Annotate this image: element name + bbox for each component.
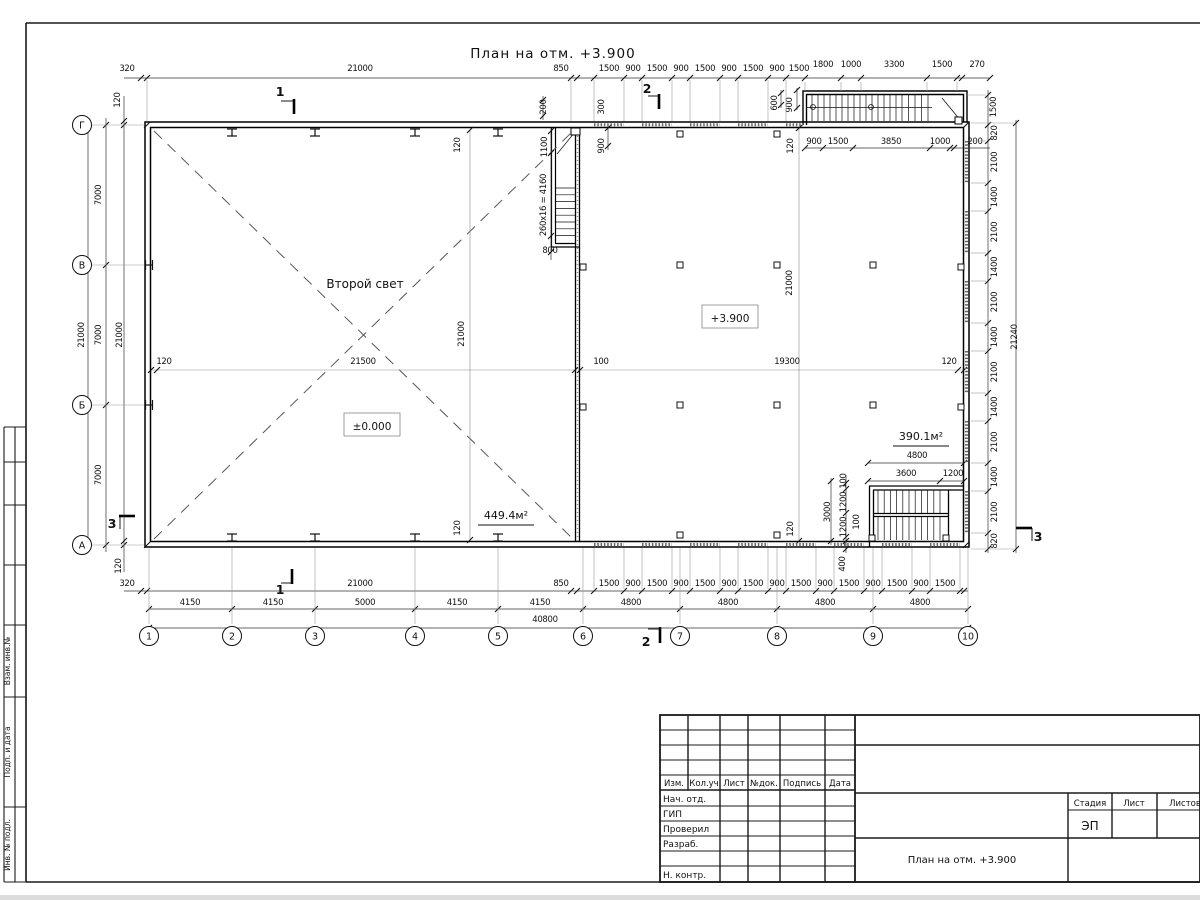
dim-label: 4150: [447, 598, 467, 608]
dim-label: 100: [852, 514, 862, 529]
dim-label: 1500: [647, 579, 667, 589]
dim-label: 1400: [990, 397, 1000, 417]
column-mark: [677, 532, 683, 538]
dim-label: 7000: [94, 325, 104, 345]
tb-col-podpis: Подпись: [783, 779, 821, 789]
level-zero-label: ±0.000: [353, 421, 392, 433]
dim-label: 1500: [695, 64, 715, 74]
axis-label: Г: [79, 121, 85, 132]
axis-label: В: [79, 261, 86, 272]
dim-label: 3850: [881, 137, 901, 147]
area-label-right: 390.1м²: [899, 430, 943, 443]
dim-label: 4150: [263, 598, 283, 608]
plan-title: План на отм. +3.900: [470, 46, 635, 62]
stamp-podp-data: Подп. и дата: [3, 726, 12, 777]
dim-label: 2100: [990, 152, 1000, 172]
dim-label: 320: [119, 579, 134, 589]
dim-label: 320: [119, 64, 134, 74]
stamp-inv-podl: Инв. № подл.: [3, 819, 12, 871]
dim-label: 4150: [180, 598, 200, 608]
tb-col-izm: Изм.: [664, 779, 684, 789]
tb-col-koluch: Кол.уч: [689, 779, 718, 789]
drawing-sheet: Взам. инв.№ Подп. и дата Инв. № подл. Пл…: [0, 0, 1200, 900]
tb-stage-value: ЭП: [1081, 819, 1098, 833]
dim-label: 300: [597, 99, 607, 114]
dim-label: 3000: [823, 502, 833, 522]
dim-label: 1200: [839, 492, 849, 512]
dim-label: 900: [673, 64, 688, 74]
dim-label: 1500: [789, 64, 809, 74]
dim-label: 21000: [347, 64, 373, 74]
dim-label: 120: [156, 357, 171, 367]
dim-label: 1500: [743, 64, 763, 74]
dim-label: 40800: [532, 615, 558, 625]
dim-label: 120: [786, 521, 796, 536]
column-mark: [774, 262, 780, 268]
stamp-vzam-inv: Взам. инв.№: [3, 637, 12, 686]
axis-label: 3: [312, 632, 318, 643]
dim-label: 21000: [77, 322, 87, 348]
section-number: 1: [276, 582, 284, 597]
column-mark: [870, 402, 876, 408]
dim-label: 1800: [813, 60, 833, 70]
dim-label: 900: [769, 64, 784, 74]
dim-label: 4150: [530, 598, 550, 608]
dim-label: 4800: [907, 451, 927, 461]
column-mark: [580, 404, 586, 410]
tb-row-proveril: Проверил: [663, 825, 709, 835]
dim-label: 270: [969, 60, 984, 70]
dim-label: 900: [806, 137, 821, 147]
dim-label: 21000: [115, 322, 125, 348]
vestibule-walls: [803, 91, 967, 125]
dim-label: 850: [553, 579, 568, 589]
dim-label: 1500: [743, 579, 763, 589]
tb-col-ndok: №док.: [750, 779, 778, 789]
column-mark: [677, 131, 683, 137]
column-mark: [677, 262, 683, 268]
dim-label: 850: [553, 64, 568, 74]
dim-label: 5000: [355, 598, 375, 608]
dim-label: 260x16 = 4160: [539, 174, 549, 236]
dim-label: 100: [593, 357, 608, 367]
dim-label: 3300: [884, 60, 904, 70]
axis-label: 8: [774, 632, 780, 643]
dim-label: 1200: [839, 517, 849, 537]
column-mark: [580, 264, 586, 270]
tb-listov-header: Листов: [1169, 799, 1200, 809]
column-mark: [774, 131, 780, 137]
axis-label: 7: [677, 632, 683, 643]
section-number: 3: [1034, 529, 1042, 544]
dim-label: 1500: [839, 579, 859, 589]
tb-row-razrab: Разраб.: [663, 840, 698, 850]
dim-label: 400: [838, 556, 848, 571]
dim-label: 1500: [989, 97, 999, 117]
dim-label: 900: [721, 579, 736, 589]
dim-label: 120: [786, 138, 796, 153]
tb-row-n-kontr: Н. контр.: [663, 871, 706, 881]
dim-label: 1500: [932, 60, 952, 70]
dim-label: 900: [817, 579, 832, 589]
section-number: 1: [276, 84, 284, 99]
dim-label: 21000: [347, 579, 373, 589]
dim-label: 2100: [990, 502, 1000, 522]
dim-label: 19300: [774, 357, 800, 367]
axis-label: А: [79, 541, 86, 552]
dim-label: 900: [625, 579, 640, 589]
axis-label: 4: [412, 632, 418, 643]
dim-label: 900: [785, 97, 795, 112]
dim-label: 2100: [990, 362, 1000, 382]
dim-label: 4800: [621, 598, 641, 608]
dim-label: 1500: [647, 64, 667, 74]
dim-label: 600: [770, 95, 780, 110]
internal-wall: [576, 128, 580, 541]
axis-label: 2: [229, 632, 235, 643]
axis-label: 6: [580, 632, 586, 643]
tb-stage-header: Стадия: [1074, 799, 1107, 809]
area-label-left: 449.4м²: [484, 509, 528, 522]
dim-label: 1400: [990, 187, 1000, 207]
dim-label: 21000: [457, 321, 467, 347]
dim-label: 200: [967, 137, 982, 147]
dim-label: 1400: [990, 257, 1000, 277]
column-mark: [774, 402, 780, 408]
axis-label: 10: [962, 632, 974, 643]
tb-doc-title: План на отм. +3.900: [908, 855, 1016, 866]
sheet-edge-shadow: [0, 895, 1200, 900]
dim-label: 1000: [841, 60, 861, 70]
dim-label: 1500: [599, 64, 619, 74]
column-mark: [943, 535, 949, 541]
dim-label: 1100: [540, 137, 550, 157]
dim-label: 1500: [887, 579, 907, 589]
dim-label: 820: [990, 125, 1000, 140]
floor-plan-drawing: Взам. инв.№ Подп. и дата Инв. № подл. Пл…: [0, 0, 1200, 900]
dim-label: 120: [113, 92, 123, 107]
door-post: [955, 117, 962, 124]
dim-label: 7000: [94, 465, 104, 485]
column-mark: [958, 404, 964, 410]
dim-label: 900: [625, 64, 640, 74]
stair-room-walls: [869, 486, 964, 547]
dim-label: 1500: [695, 579, 715, 589]
dim-label: 820: [990, 533, 1000, 548]
dim-label: 900: [597, 138, 607, 153]
dim-label: 1400: [990, 327, 1000, 347]
axis-label: Б: [79, 401, 86, 412]
column-mark: [870, 262, 876, 268]
dim-label: 2100: [990, 222, 1000, 242]
column-mark: [869, 535, 875, 541]
dim-label: 900: [673, 579, 688, 589]
dim-label: 3600: [896, 469, 916, 479]
dim-label: 1200: [943, 469, 963, 479]
dim-label: 900: [721, 64, 736, 74]
stair-top-landing: [571, 128, 580, 135]
dim-label: 1400: [990, 467, 1000, 487]
tb-row-gip: ГИП: [663, 810, 682, 820]
dim-label: 2100: [990, 292, 1000, 312]
dim-label: 1500: [828, 137, 848, 147]
void-cross: [154, 131, 573, 539]
dim-label: 4800: [815, 598, 835, 608]
column-mark: [677, 402, 683, 408]
dim-label: 2100: [990, 432, 1000, 452]
dim-label: 21500: [350, 357, 376, 367]
section-number: 3: [108, 516, 116, 531]
room-label-second-light: Второй свет: [326, 277, 403, 291]
dim-label: 120: [453, 137, 463, 152]
axis-label: 5: [495, 632, 501, 643]
dim-label: 900: [913, 579, 928, 589]
dim-label: 4800: [910, 598, 930, 608]
tb-list-header: Лист: [1123, 799, 1145, 809]
column-mark: [774, 532, 780, 538]
dim-label: 21000: [785, 270, 795, 296]
tb-col-data: Дата: [829, 779, 851, 789]
column-mark: [958, 264, 964, 270]
dim-label: 120: [941, 357, 956, 367]
dim-label: 120: [453, 520, 463, 535]
dim-label: 1500: [599, 579, 619, 589]
axis-label: 1: [146, 632, 152, 643]
dim-label: 200: [539, 99, 549, 114]
section-number: 2: [643, 81, 651, 96]
sheet-frame: [26, 23, 1200, 882]
dim-label: 1500: [791, 579, 811, 589]
dim-label: 4800: [718, 598, 738, 608]
dim-label: 800: [542, 246, 557, 256]
dim-label: 120: [114, 558, 124, 573]
dim-label: 21240: [1010, 324, 1020, 350]
section-number: 2: [642, 634, 650, 649]
dim-label: 7000: [94, 185, 104, 205]
tb-row-nach-otd: Нач. отд.: [663, 795, 706, 805]
dim-label: 1500: [935, 579, 955, 589]
axis-label: 9: [870, 632, 876, 643]
level-3900-label: +3.900: [711, 313, 750, 325]
tb-col-list: Лист: [723, 779, 745, 789]
